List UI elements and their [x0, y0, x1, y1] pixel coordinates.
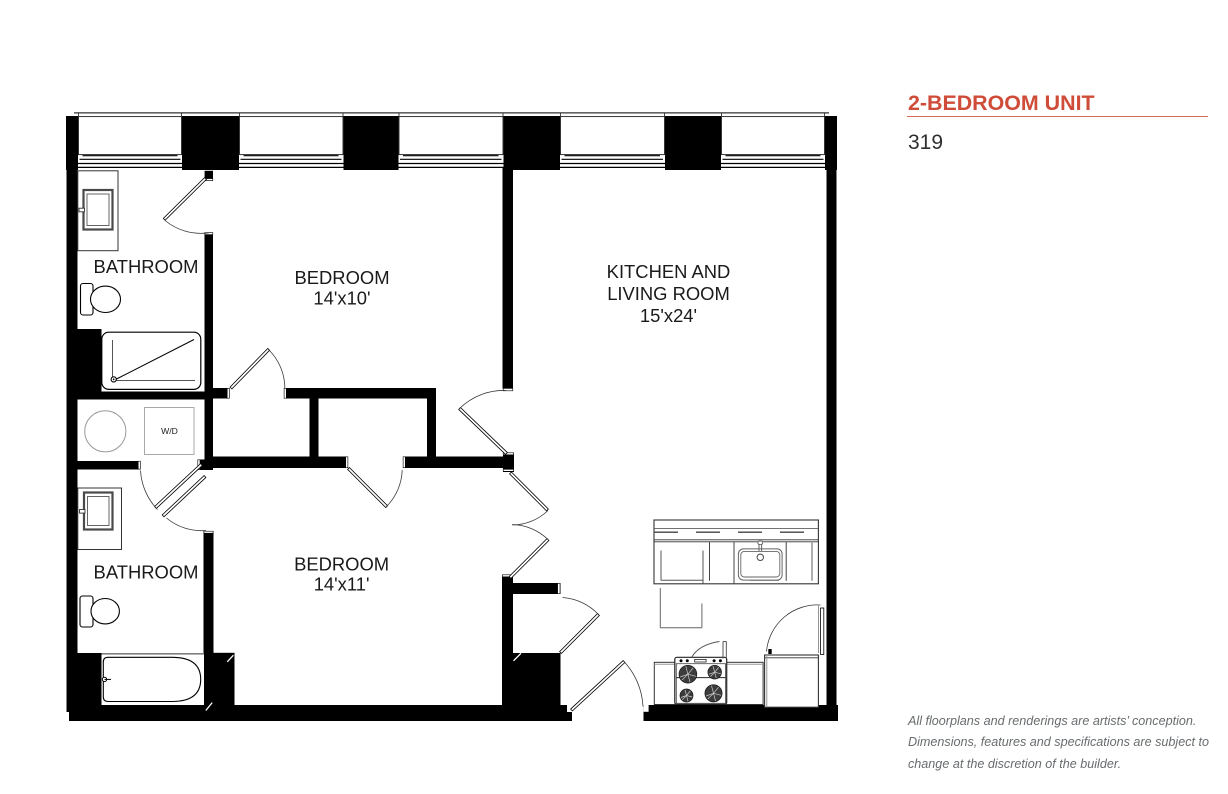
svg-text:BEDROOM: BEDROOM	[294, 554, 389, 575]
svg-text:BATHROOM: BATHROOM	[94, 256, 199, 277]
svg-text:14'x10': 14'x10'	[313, 287, 370, 308]
svg-text:15'x24': 15'x24'	[640, 305, 697, 326]
svg-text:14'x11': 14'x11'	[314, 574, 370, 595]
svg-text:W/D: W/D	[161, 426, 178, 436]
svg-text:BEDROOM: BEDROOM	[294, 267, 389, 288]
svg-text:KITCHEN AND: KITCHEN AND	[607, 261, 731, 282]
svg-text:LIVING ROOM: LIVING ROOM	[607, 283, 730, 304]
svg-text:BATHROOM: BATHROOM	[94, 562, 199, 583]
